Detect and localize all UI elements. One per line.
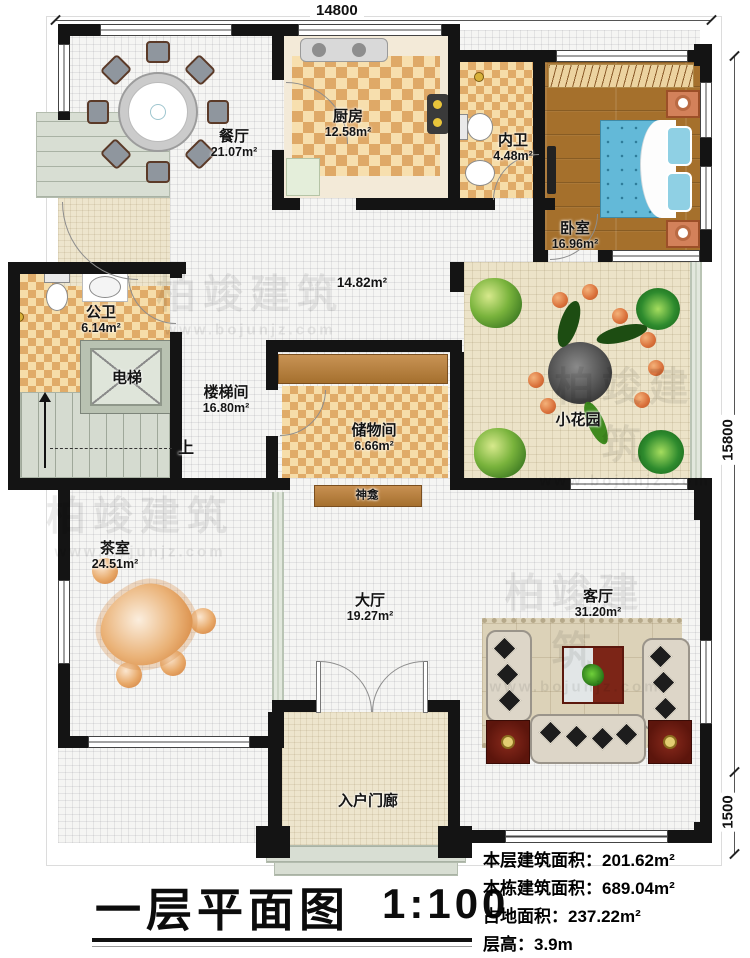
stat-floor-area: 本层建筑面积：201.62m² [483, 846, 675, 871]
wall-corner-block [694, 44, 712, 66]
corridor-area-label: 14.82m² [337, 275, 387, 291]
floor-plan-page: { "title_block": { "title": "一层平面图", "sc… [0, 0, 750, 958]
window [570, 478, 688, 490]
dimension-top-label: 14800 [310, 2, 364, 19]
dining-chair [146, 161, 170, 183]
planter-fruit [612, 308, 628, 324]
nightstand-lamp [675, 225, 691, 241]
wall [448, 712, 460, 843]
window [505, 830, 668, 843]
room-label-kitchen: 厨房 12.58m² [325, 108, 372, 140]
room-label-elevator: 电梯 [112, 369, 142, 386]
bed-pillow [666, 172, 692, 212]
stat-label: 本层建筑面积： [483, 851, 602, 870]
planter-fruit [540, 398, 556, 414]
dimension-right-main-label: 15800 [720, 415, 737, 465]
wardrobe [548, 64, 694, 88]
wall-corner-block [694, 822, 712, 843]
window [58, 580, 70, 664]
planter-fruit [648, 360, 664, 376]
dining-chair [207, 100, 229, 124]
room-label-public-bath: 公卫 6.14m² [81, 304, 121, 336]
window [298, 24, 442, 36]
wall [450, 352, 464, 490]
porch-step-1 [266, 845, 466, 863]
window [700, 82, 712, 138]
wall-corner-block [438, 826, 472, 858]
kitchen-sink-bowl [312, 43, 326, 57]
dimension-line-top [55, 20, 712, 21]
room-label-porch: 入户门廊 [338, 792, 398, 809]
room-label-inner-bath: 内卫 4.48m² [493, 132, 533, 164]
wall-corner-block [256, 826, 290, 858]
tea-room-glass-partition [272, 492, 284, 702]
wall [170, 332, 182, 490]
room-label-tea: 茶室 24.51m² [92, 540, 139, 572]
planter-fruit [528, 372, 544, 388]
stove-burner [433, 100, 442, 109]
storage-cabinet [278, 354, 448, 384]
wall [266, 436, 278, 478]
wash-basin [89, 276, 121, 298]
room-label-garden: 小花园 [555, 411, 600, 428]
nightstand-lamp [675, 95, 691, 111]
room-label-storage: 储物间 6.66m² [351, 422, 396, 454]
dining-table-center [150, 104, 166, 120]
wash-basin [465, 160, 495, 186]
wall [448, 50, 545, 62]
bed-pillow [666, 126, 692, 166]
stat-value: 237.22m² [568, 907, 641, 926]
wall [356, 198, 495, 210]
wall [272, 198, 300, 210]
planter-fruit [640, 332, 656, 348]
page-title: 一层平面图 [95, 874, 350, 940]
dimension-right-lower-label: 1500 [720, 792, 737, 831]
window [700, 640, 712, 724]
window [612, 250, 700, 262]
room-label-hall: 大厅 19.27m² [347, 592, 394, 624]
wall [284, 700, 318, 712]
title-underline-thin [92, 946, 472, 947]
stairs-up-arrow-stem [44, 400, 46, 468]
window [700, 166, 712, 230]
dining-chair [146, 41, 170, 63]
garden-bush [474, 428, 526, 478]
wall [533, 250, 548, 262]
kitchen-counter [286, 158, 320, 196]
dimension-line-right-main [734, 56, 735, 772]
stairs-up-arrow-head [39, 392, 51, 402]
stat-building-area: 本栋建筑面积：689.04m² [483, 874, 675, 899]
wall [8, 262, 20, 490]
stat-floor-height: 层高：3.9m [483, 930, 573, 955]
stat-label: 本栋建筑面积： [483, 879, 602, 898]
wall [266, 340, 462, 352]
wall [8, 478, 290, 490]
kitchen-sink-bowl [352, 43, 366, 57]
wall [448, 36, 460, 210]
room-label-bedroom: 卧室 16.96m² [552, 220, 599, 252]
stat-label: 层高： [483, 935, 534, 954]
window [88, 736, 250, 748]
stat-value: 201.62m² [602, 851, 675, 870]
garden-planter-pot [548, 342, 612, 404]
stairs-up-label: 上 [178, 440, 194, 458]
wall [266, 352, 278, 390]
window [556, 50, 688, 62]
wall [268, 712, 282, 830]
porch-floor [282, 712, 448, 847]
side-table-medallion [663, 735, 677, 749]
stat-value: 689.04m² [602, 879, 675, 898]
planter-fruit [552, 292, 568, 308]
window [100, 24, 232, 36]
room-label-living: 客厅 31.20m² [575, 588, 622, 620]
stat-value: 3.9m [534, 935, 573, 954]
wall [272, 24, 284, 80]
toilet-bowl [46, 283, 68, 311]
wall [450, 262, 464, 292]
shrine-label: 神龛 [356, 489, 379, 502]
tea-stool [190, 608, 216, 634]
side-table-medallion [501, 735, 515, 749]
garden-glazing [690, 262, 702, 478]
floor-plan: 柏竣建筑 www.bojunjz.com 柏竣建筑 www.bojunjz.co… [0, 0, 750, 958]
window [58, 44, 70, 112]
tea-stool [116, 662, 142, 688]
room-label-stairwell: 楼梯间 16.80m² [203, 384, 250, 416]
room-label-dining: 餐厅 21.07m² [211, 128, 258, 160]
garden-bush [470, 278, 522, 328]
coffee-table-plant [582, 664, 604, 686]
title-underline [92, 938, 472, 942]
dining-chair [87, 100, 109, 124]
toilet-bowl [467, 113, 493, 141]
faucet-icon [474, 72, 484, 82]
planter-fruit [634, 392, 650, 408]
planter-fruit [582, 284, 598, 300]
garden-palm [638, 430, 684, 474]
wall [428, 700, 460, 712]
stat-label: 占地面积： [483, 907, 568, 926]
stat-footprint-area: 占地面积：237.22m² [483, 902, 641, 927]
stairs-walkline [50, 448, 172, 449]
tv-icon [547, 146, 556, 194]
stove-burner [433, 118, 442, 127]
